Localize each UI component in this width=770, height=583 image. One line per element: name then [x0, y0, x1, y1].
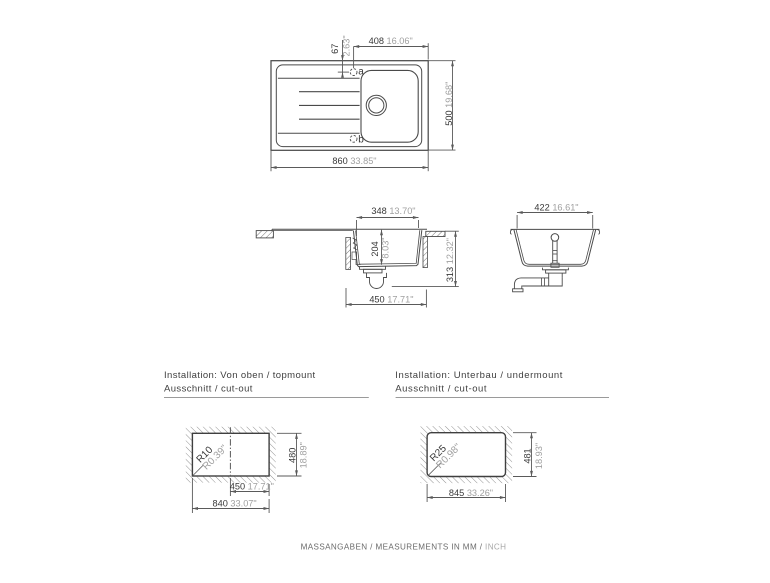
- svg-text:Ausschnitt / cut-out: Ausschnitt / cut-out: [395, 384, 487, 395]
- svg-text:313 12.32": 313 12.32": [445, 238, 455, 282]
- svg-text:481: 481: [522, 448, 532, 463]
- svg-text:Ausschnitt / cut-out: Ausschnitt / cut-out: [164, 384, 253, 395]
- svg-text:450 17.71": 450 17.71": [369, 294, 413, 304]
- svg-text:MASSANGABEN / MEASUREMENTS IN: MASSANGABEN / MEASUREMENTS IN MM / INCH: [301, 543, 507, 552]
- svg-text:18.89": 18.89": [299, 442, 309, 468]
- svg-text:500 19.68": 500 19.68": [444, 82, 454, 126]
- svg-text:845 33.26": 845 33.26": [449, 488, 493, 498]
- svg-text:2.63": 2.63": [341, 35, 351, 56]
- svg-text:348 13.70": 348 13.70": [371, 206, 415, 216]
- svg-text:422 16.61": 422 16.61": [534, 202, 578, 212]
- svg-text:840 33.07": 840 33.07": [213, 498, 257, 508]
- svg-text:a: a: [358, 66, 364, 77]
- svg-text:450 17.71": 450 17.71": [230, 482, 274, 492]
- svg-text:18.93": 18.93": [534, 443, 544, 469]
- svg-text:8.03": 8.03": [380, 237, 390, 258]
- svg-text:408 16.06": 408 16.06": [369, 36, 413, 46]
- svg-text:b: b: [358, 134, 364, 145]
- svg-text:860 33.85": 860 33.85": [332, 156, 376, 166]
- svg-text:Installation: Von oben / topmo: Installation: Von oben / topmount: [164, 370, 316, 381]
- svg-text:204: 204: [370, 241, 380, 256]
- svg-text:67: 67: [330, 44, 340, 54]
- svg-text:Installation: Unterbau / under: Installation: Unterbau / undermount: [395, 370, 563, 381]
- svg-text:480: 480: [287, 448, 297, 463]
